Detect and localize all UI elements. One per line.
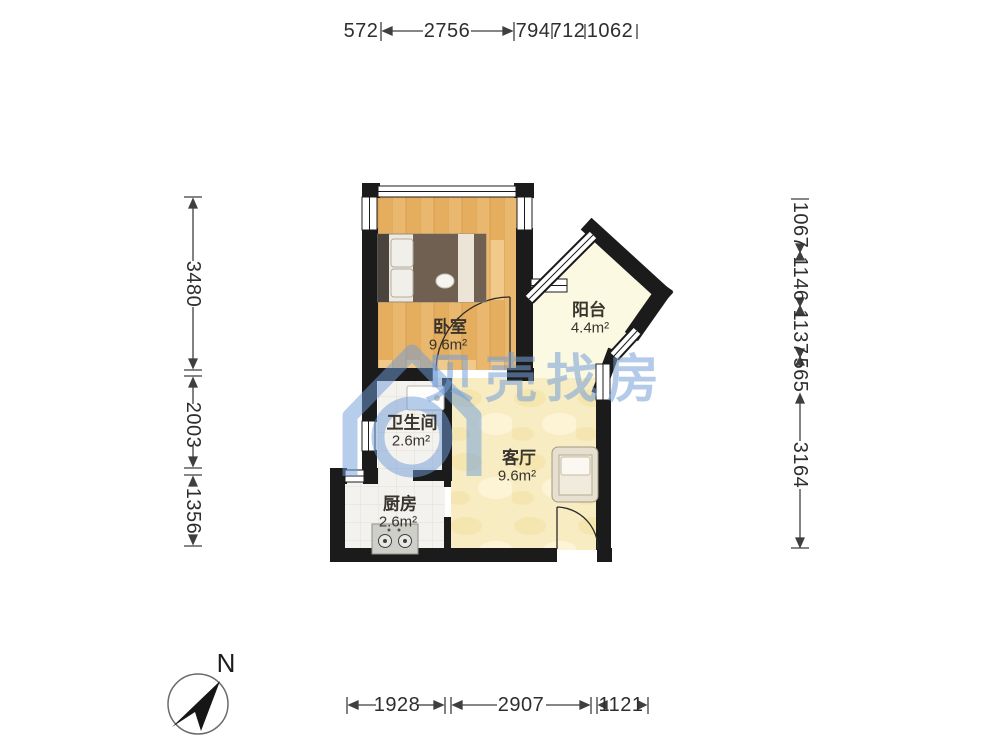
dim-right-3164: 3164 [790, 442, 810, 489]
room-area-living: 9.6m² [498, 469, 536, 484]
dim-left-2003: 2003 [183, 402, 203, 449]
room-area-bathroom: 2.6m² [392, 434, 430, 449]
dim-left-3480: 3480 [183, 261, 203, 308]
dim-top-572: 572 [344, 21, 379, 41]
room-label-living: 客厅 [502, 450, 536, 467]
bedroom-top-window-icon [378, 186, 516, 197]
compass-icon [168, 674, 228, 734]
bed-icon [378, 234, 486, 302]
compass-north-label: N [217, 650, 236, 676]
room-label-bedroom: 卧室 [433, 319, 467, 336]
dim-top-712: 712 [551, 21, 586, 41]
room-area-kitchen: 2.6m² [379, 515, 417, 530]
watermark-text: 贝壳找房 [424, 354, 668, 406]
dim-right-1067: 1067 [790, 202, 810, 249]
dim-left-1356: 1356 [183, 488, 203, 535]
dim-top-1062: 1062 [587, 21, 634, 41]
room-area-balcony: 4.4m² [571, 321, 609, 336]
floorplan-page: 572 2756 794 712 1062 1928 2907 1121 348… [0, 0, 1000, 750]
dim-bottom-2907: 2907 [498, 695, 545, 715]
room-label-bathroom: 卫生间 [387, 415, 438, 432]
dim-bottom-1121: 1121 [598, 695, 643, 715]
bedroom-right-window-icon [517, 197, 532, 230]
bedroom-left-window-icon [362, 197, 377, 230]
dim-right-1137: 1137 [790, 309, 810, 354]
dim-right-1146: 1146 [790, 256, 810, 301]
room-label-balcony: 阳台 [572, 302, 606, 319]
dim-bottom-1928: 1928 [374, 695, 421, 715]
room-label-kitchen: 厨房 [383, 496, 417, 513]
dim-right-565: 565 [790, 358, 810, 393]
dim-top-794: 794 [516, 21, 551, 41]
dim-top-2756: 2756 [424, 21, 471, 41]
armchair-icon [552, 447, 598, 502]
